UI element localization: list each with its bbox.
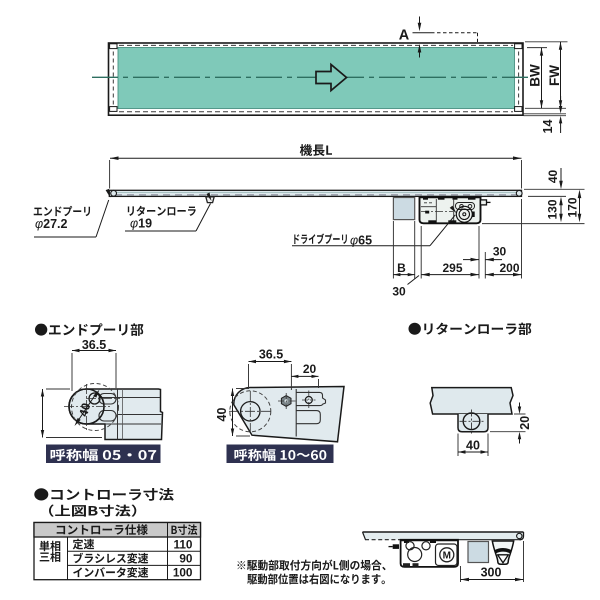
svg-text:110: 110 <box>173 537 192 551</box>
svg-text:36.5: 36.5 <box>259 348 283 362</box>
svg-text:30: 30 <box>392 285 406 299</box>
svg-text:40: 40 <box>215 408 229 422</box>
svg-text:B: B <box>397 261 406 275</box>
svg-text:100: 100 <box>173 566 193 580</box>
svg-text:130: 130 <box>546 199 560 219</box>
svg-text:36.5: 36.5 <box>82 338 106 352</box>
svg-text:90: 90 <box>179 552 193 566</box>
svg-text:φ19: φ19 <box>130 217 152 231</box>
svg-text:295: 295 <box>442 261 462 275</box>
svg-text:40: 40 <box>466 439 480 453</box>
svg-text:40: 40 <box>546 170 560 184</box>
svg-text:BW: BW <box>528 64 543 87</box>
svg-text:φ27.2: φ27.2 <box>35 217 68 231</box>
svg-text:200: 200 <box>499 261 519 275</box>
svg-text:300: 300 <box>481 566 502 580</box>
svg-text:30: 30 <box>493 245 507 259</box>
svg-text:20: 20 <box>518 416 532 430</box>
svg-text:20: 20 <box>303 362 317 376</box>
svg-text:A: A <box>399 28 410 44</box>
svg-text:170: 170 <box>566 197 580 217</box>
svg-text:FW: FW <box>547 65 562 86</box>
svg-text:M: M <box>443 551 451 562</box>
svg-text:14: 14 <box>541 120 555 134</box>
